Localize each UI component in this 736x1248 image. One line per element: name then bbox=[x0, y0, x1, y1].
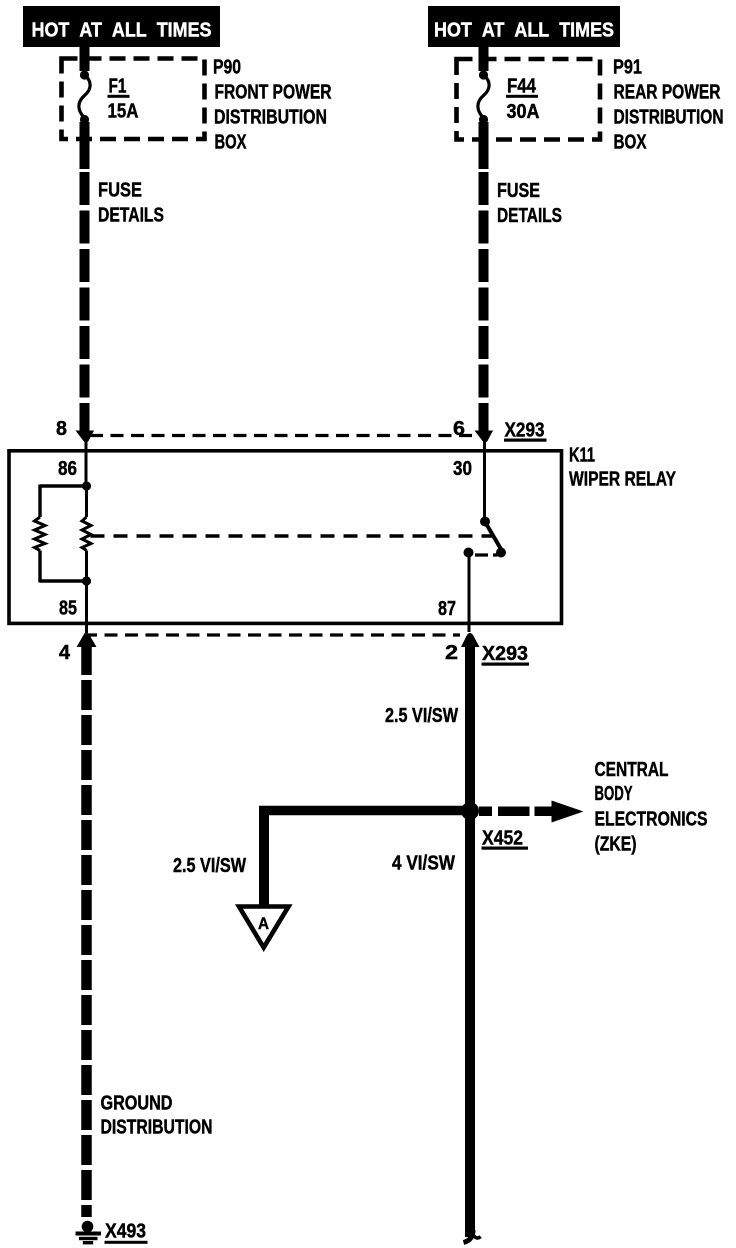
svg-text:2.5 VI/SW: 2.5 VI/SW bbox=[385, 705, 458, 727]
svg-text:F44: F44 bbox=[507, 76, 537, 98]
svg-text:30A: 30A bbox=[507, 101, 540, 123]
svg-text:8: 8 bbox=[56, 418, 67, 440]
svg-text:X493: X493 bbox=[105, 1221, 146, 1243]
svg-text:DETAILS: DETAILS bbox=[98, 205, 164, 227]
svg-text:4 VI/SW: 4 VI/SW bbox=[392, 853, 455, 875]
svg-text:4: 4 bbox=[59, 642, 71, 664]
svg-text:HOT AT ALL TIMES: HOT AT ALL TIMES bbox=[32, 20, 212, 42]
svg-text:2: 2 bbox=[445, 642, 458, 664]
svg-text:FUSE: FUSE bbox=[98, 180, 142, 202]
svg-text:HOT AT ALL TIMES: HOT AT ALL TIMES bbox=[434, 20, 614, 42]
svg-text:2.5 VI/SW: 2.5 VI/SW bbox=[173, 855, 246, 877]
svg-text:X293: X293 bbox=[505, 420, 545, 442]
svg-text:85: 85 bbox=[59, 598, 77, 620]
svg-text:P91: P91 bbox=[613, 57, 642, 79]
svg-text:DISTRIBUTION: DISTRIBUTION bbox=[614, 107, 724, 129]
svg-text:6: 6 bbox=[453, 418, 465, 440]
svg-text:86: 86 bbox=[58, 458, 77, 480]
svg-text:A: A bbox=[258, 914, 269, 933]
svg-text:WIPER RELAY: WIPER RELAY bbox=[569, 469, 677, 491]
svg-text:ELECTRONICS: ELECTRONICS bbox=[595, 809, 708, 831]
svg-text:DETAILS: DETAILS bbox=[497, 205, 562, 227]
svg-text:BOX: BOX bbox=[215, 132, 247, 154]
svg-text:BOX: BOX bbox=[614, 132, 647, 154]
svg-text:15A: 15A bbox=[108, 101, 139, 123]
svg-text:CENTRAL: CENTRAL bbox=[595, 759, 669, 781]
svg-text:K11: K11 bbox=[569, 445, 595, 467]
svg-text:DISTRIBUTION: DISTRIBUTION bbox=[214, 107, 327, 129]
svg-text:(ZKE): (ZKE) bbox=[595, 834, 637, 856]
svg-text:GROUND: GROUND bbox=[101, 1093, 173, 1115]
svg-text:REAR POWER: REAR POWER bbox=[614, 82, 721, 104]
svg-text:BODY: BODY bbox=[595, 783, 633, 805]
svg-text:87: 87 bbox=[438, 598, 456, 620]
svg-text:F1: F1 bbox=[109, 76, 127, 98]
svg-text:X293: X293 bbox=[482, 643, 528, 665]
svg-text:DISTRIBUTION: DISTRIBUTION bbox=[101, 1117, 213, 1139]
svg-text:FRONT POWER: FRONT POWER bbox=[215, 82, 332, 104]
svg-text:P90: P90 bbox=[213, 57, 241, 79]
svg-text:X452: X452 bbox=[482, 828, 523, 850]
svg-text:FUSE: FUSE bbox=[497, 180, 540, 202]
svg-text:30: 30 bbox=[453, 458, 472, 480]
